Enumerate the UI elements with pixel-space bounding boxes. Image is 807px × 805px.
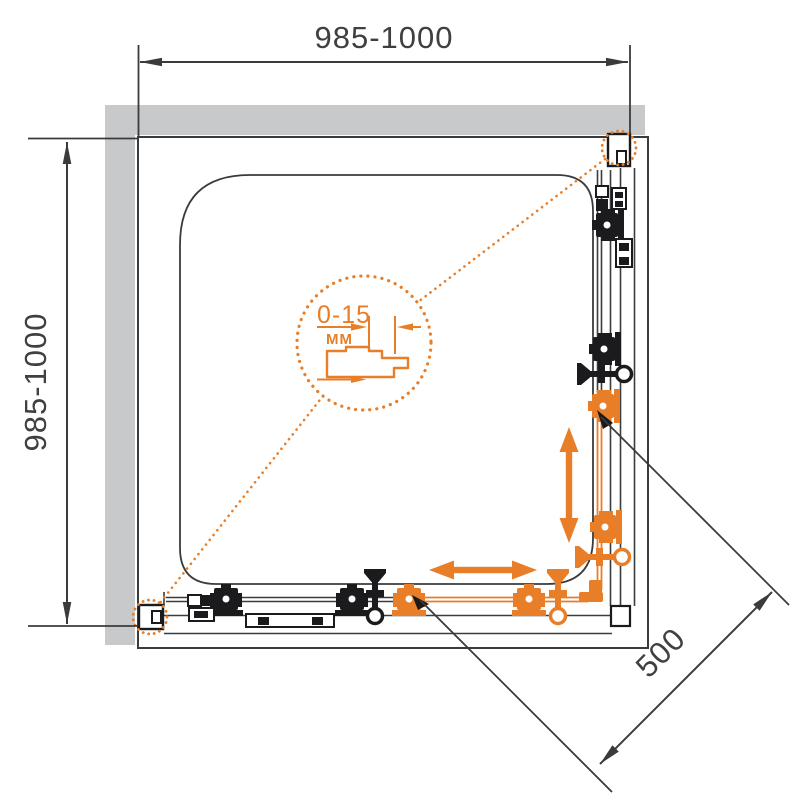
door-corner-connector	[579, 580, 603, 602]
arrow-up-icon	[560, 427, 579, 452]
arrow-left-icon	[429, 561, 454, 580]
detail-unit-label: MM	[326, 331, 353, 348]
dimension-diagonal-label: 500	[629, 621, 692, 684]
door-handle-icon	[547, 569, 569, 624]
handle-knob-icon	[577, 363, 632, 385]
arrow-down-icon	[560, 518, 579, 543]
wall-profile-bottom-left	[133, 600, 167, 634]
door-roller-icon	[590, 510, 622, 544]
handle-knob-icon	[364, 569, 386, 624]
callout-leader-line	[160, 396, 323, 603]
detail-adjustment-label: 0-15	[317, 301, 371, 329]
corner-post	[611, 606, 630, 626]
detail-circle-icon	[297, 276, 431, 410]
dim-arrow-icon	[63, 602, 72, 624]
movement-arrow-horizontal	[429, 561, 537, 580]
dim-arrow-icon	[63, 142, 72, 164]
roller-icon	[335, 584, 369, 616]
detail-callout: 0-15 MM	[160, 159, 605, 603]
arrow-right-icon	[512, 561, 537, 580]
dimension-top-label: 985-1000	[314, 20, 453, 55]
dim-arrow-icon	[606, 58, 628, 67]
hardware-right	[577, 186, 632, 385]
wall-left	[105, 105, 135, 645]
dimension-left-label: 985-1000	[18, 312, 53, 451]
movement-arrow-vertical	[560, 427, 579, 543]
dim-arrow-icon	[140, 58, 162, 67]
door-roller-icon	[512, 584, 546, 616]
wall-profile-top-right	[602, 131, 636, 166]
wall-top	[105, 105, 645, 135]
callout-leader-line	[418, 159, 605, 302]
shower-enclosure-diagram: 0-15 MM 985-1000	[0, 0, 807, 805]
door-handle-icon	[575, 546, 630, 568]
drawing-canvas: 0-15 MM 985-1000	[0, 0, 807, 805]
